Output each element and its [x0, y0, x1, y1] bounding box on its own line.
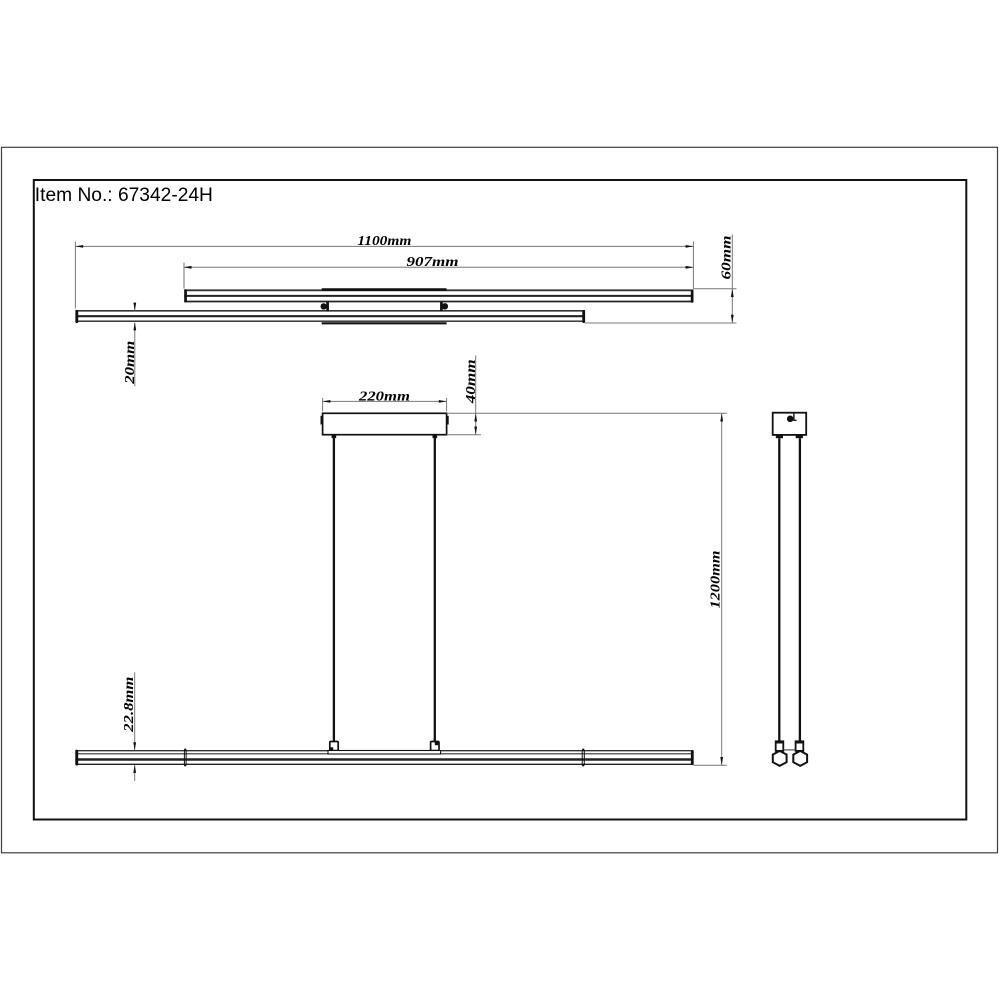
svg-text:Item No.: 67342-24H: Item No.: 67342-24H: [35, 185, 213, 206]
svg-text:220mm: 220mm: [358, 388, 411, 403]
svg-text:1200mm: 1200mm: [708, 550, 723, 608]
svg-text:22.8mm: 22.8mm: [121, 676, 136, 733]
svg-text:907mm: 907mm: [407, 254, 459, 269]
svg-text:60mm: 60mm: [719, 235, 734, 279]
svg-text:1100mm: 1100mm: [357, 233, 411, 248]
svg-text:20mm: 20mm: [122, 340, 137, 385]
svg-text:40mm: 40mm: [463, 359, 478, 405]
